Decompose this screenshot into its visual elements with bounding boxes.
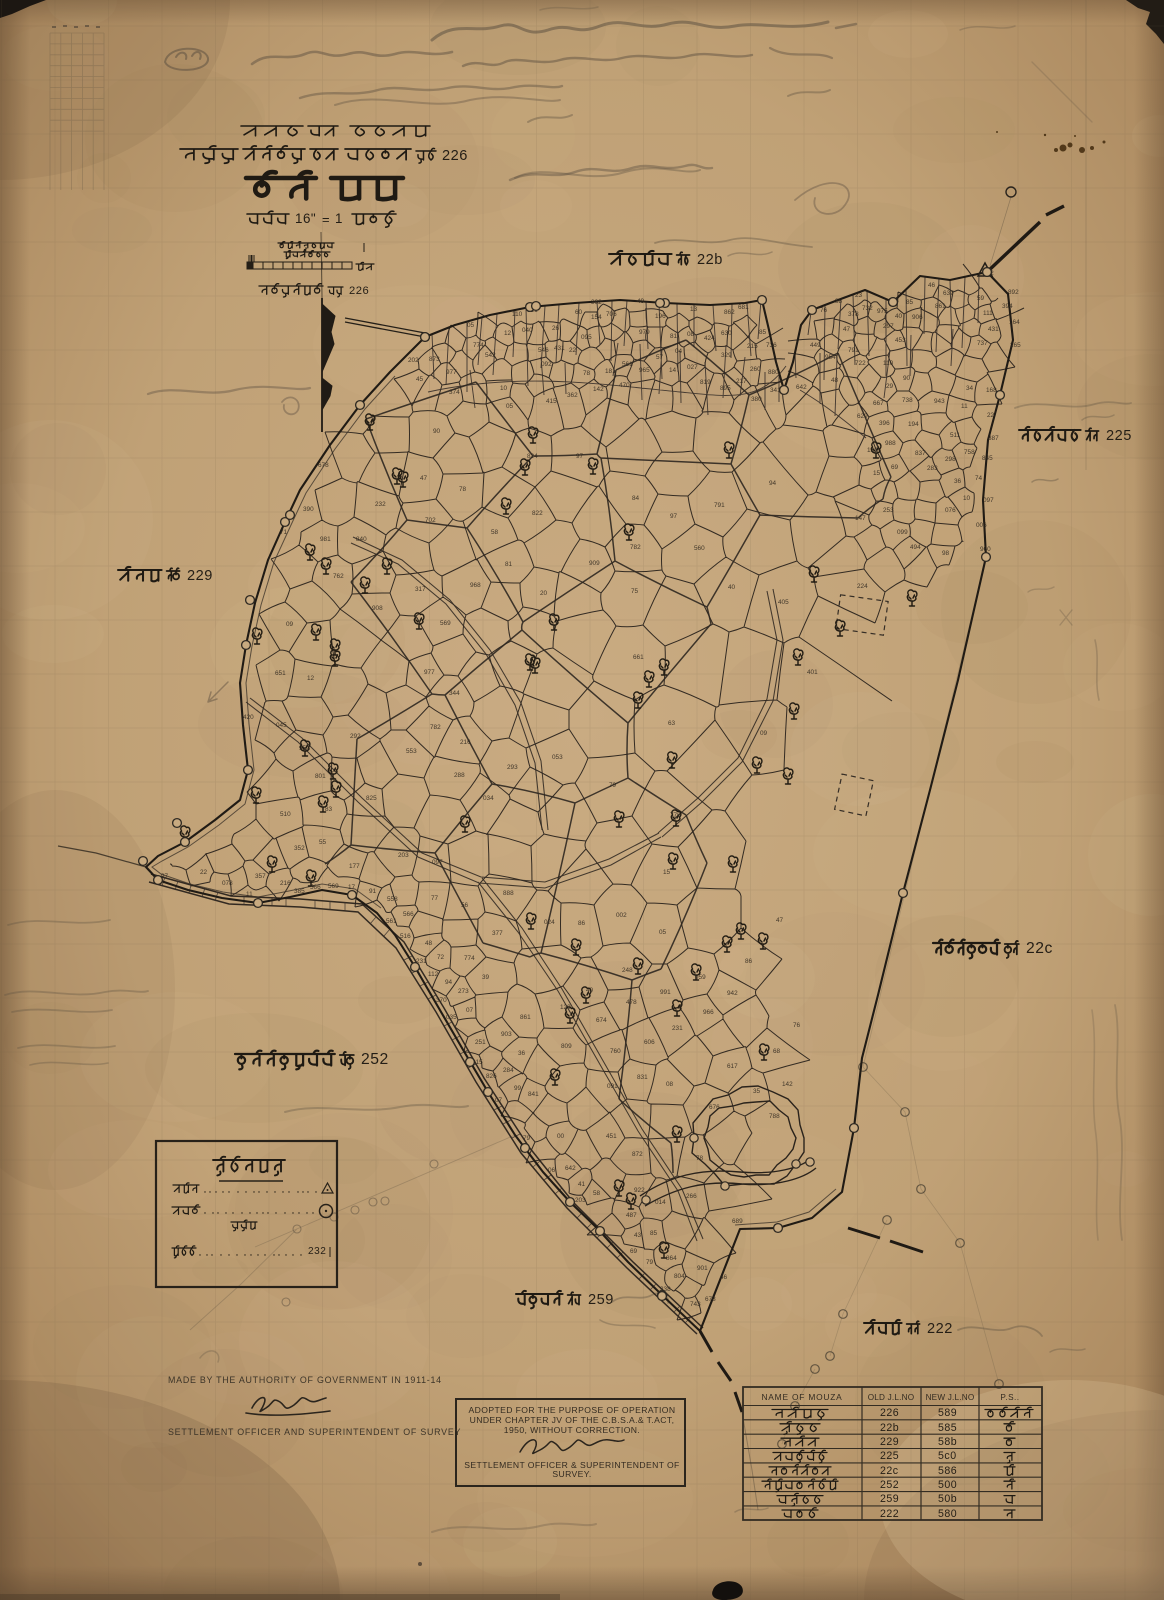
svg-text:252: 252 <box>880 1479 899 1491</box>
svg-text:002: 002 <box>616 912 627 919</box>
svg-text:97: 97 <box>670 513 678 520</box>
svg-text:41: 41 <box>578 1181 586 1188</box>
svg-text:791: 791 <box>714 502 725 509</box>
svg-text:580: 580 <box>938 1508 957 1520</box>
svg-text:04: 04 <box>675 348 683 355</box>
svg-text:79: 79 <box>646 1259 654 1266</box>
svg-text:288: 288 <box>454 772 465 779</box>
svg-text:888: 888 <box>503 890 514 897</box>
svg-text:822: 822 <box>532 510 543 517</box>
svg-text:702: 702 <box>425 517 436 524</box>
svg-text:424: 424 <box>704 335 715 342</box>
svg-text:385: 385 <box>294 888 305 895</box>
svg-text:377: 377 <box>492 930 503 937</box>
svg-text:48: 48 <box>831 377 839 384</box>
svg-text:05: 05 <box>659 929 667 936</box>
svg-text:420: 420 <box>243 714 254 721</box>
svg-text:880: 880 <box>768 369 779 376</box>
svg-text:585: 585 <box>938 1422 957 1434</box>
svg-text:966: 966 <box>703 1009 714 1016</box>
svg-text:81: 81 <box>670 333 678 340</box>
svg-text:05: 05 <box>467 322 475 329</box>
svg-text:979: 979 <box>639 329 650 336</box>
svg-text:11: 11 <box>246 891 253 898</box>
svg-text:43: 43 <box>634 1232 642 1239</box>
svg-text:NEW J.L.NO: NEW J.L.NO <box>926 1393 975 1402</box>
svg-text:SURVEY.: SURVEY. <box>552 1469 591 1479</box>
svg-text:252: 252 <box>361 1051 389 1068</box>
svg-text:629: 629 <box>857 413 868 420</box>
svg-text:344: 344 <box>449 690 460 697</box>
svg-text:154: 154 <box>591 314 602 321</box>
svg-text:77: 77 <box>431 895 439 902</box>
svg-text:097: 097 <box>983 497 994 504</box>
svg-text:569: 569 <box>328 883 339 890</box>
svg-text:71: 71 <box>280 529 288 536</box>
svg-text:90: 90 <box>903 375 911 382</box>
svg-text:86: 86 <box>578 920 586 927</box>
svg-text:630: 630 <box>721 330 732 337</box>
svg-text:MADE BY THE AUTHORITY OF GOVER: MADE BY THE AUTHORITY OF GOVERNMENT IN 1… <box>168 1375 442 1385</box>
svg-text:79: 79 <box>523 1135 531 1142</box>
svg-text:203: 203 <box>575 1197 586 1204</box>
svg-text:453: 453 <box>895 337 906 344</box>
svg-text:40: 40 <box>586 987 594 994</box>
svg-text:22b: 22b <box>697 252 723 268</box>
svg-text:NAME OF MOUZA: NAME OF MOUZA <box>761 1392 842 1402</box>
svg-text:960: 960 <box>980 546 991 553</box>
svg-text:566: 566 <box>403 911 414 918</box>
svg-text:22b: 22b <box>880 1422 899 1434</box>
svg-text:431: 431 <box>988 326 999 333</box>
svg-text:606: 606 <box>644 1039 655 1046</box>
svg-text:667: 667 <box>873 400 884 407</box>
svg-text:975: 975 <box>877 308 888 315</box>
svg-text:94: 94 <box>769 480 777 487</box>
svg-text:129: 129 <box>560 1004 571 1011</box>
svg-text:864: 864 <box>666 1255 677 1262</box>
svg-text:23: 23 <box>855 292 863 299</box>
svg-text:954: 954 <box>825 354 836 361</box>
svg-text:111: 111 <box>983 310 993 317</box>
svg-text:415: 415 <box>546 398 557 405</box>
svg-text:329: 329 <box>721 352 732 359</box>
svg-text:774: 774 <box>473 342 484 349</box>
svg-text:260: 260 <box>750 366 761 373</box>
svg-text:72: 72 <box>437 954 445 961</box>
svg-text:20: 20 <box>540 590 548 597</box>
svg-text:58: 58 <box>491 529 499 536</box>
svg-text:095: 095 <box>581 334 592 341</box>
svg-text:053: 053 <box>552 754 563 761</box>
svg-text:85: 85 <box>759 329 767 336</box>
svg-text:873: 873 <box>429 356 440 363</box>
svg-text:74: 74 <box>975 475 983 482</box>
svg-text:478: 478 <box>626 999 637 1006</box>
svg-text:352: 352 <box>294 845 305 852</box>
svg-text:861: 861 <box>935 303 946 310</box>
svg-text:00: 00 <box>557 1133 565 1140</box>
svg-text:861: 861 <box>520 1014 531 1021</box>
svg-text:69: 69 <box>891 464 899 471</box>
svg-text:194: 194 <box>908 421 919 428</box>
svg-text:825: 825 <box>366 795 377 802</box>
svg-text:988: 988 <box>885 440 896 447</box>
svg-text:22: 22 <box>200 869 208 876</box>
svg-text:292: 292 <box>350 733 361 740</box>
svg-text:809: 809 <box>561 1043 572 1050</box>
svg-text:1: 1 <box>335 211 343 226</box>
svg-text:SETTLEMENT OFFICER AND SUPERIN: SETTLEMENT OFFICER AND SUPERINTENDENT OF… <box>168 1427 461 1437</box>
svg-text:45: 45 <box>416 376 424 383</box>
svg-text:202: 202 <box>408 357 419 364</box>
svg-text:35: 35 <box>753 1088 761 1095</box>
svg-text:782: 782 <box>630 544 641 551</box>
svg-text:511: 511 <box>950 432 961 439</box>
svg-text:405: 405 <box>778 599 789 606</box>
svg-text:317: 317 <box>415 586 426 593</box>
svg-text:88: 88 <box>835 298 843 305</box>
svg-text:224: 224 <box>857 583 868 590</box>
svg-text:942: 942 <box>727 990 738 997</box>
svg-text:561: 561 <box>622 361 633 368</box>
svg-text:569: 569 <box>440 620 451 627</box>
svg-text:232: 232 <box>308 1246 326 1257</box>
svg-text:922: 922 <box>634 1187 645 1194</box>
svg-text:722: 722 <box>855 360 866 367</box>
svg-text:259: 259 <box>588 1292 614 1308</box>
svg-text:674: 674 <box>596 1017 607 1024</box>
svg-text:908: 908 <box>372 605 383 612</box>
svg-text:449: 449 <box>810 342 821 349</box>
svg-text:56: 56 <box>461 902 469 909</box>
svg-text:901: 901 <box>697 1265 708 1272</box>
svg-text:181: 181 <box>605 368 616 375</box>
svg-text:952: 952 <box>299 745 310 752</box>
svg-text:676: 676 <box>709 1104 720 1111</box>
svg-text:284: 284 <box>503 1067 514 1074</box>
svg-text:959: 959 <box>695 974 706 981</box>
svg-text:516: 516 <box>400 933 411 940</box>
svg-text:431: 431 <box>554 345 565 352</box>
svg-text:22: 22 <box>987 412 995 419</box>
svg-text:39: 39 <box>482 974 490 981</box>
svg-text:370: 370 <box>436 997 447 1004</box>
svg-text:470: 470 <box>619 382 630 389</box>
svg-text:845: 845 <box>982 455 993 462</box>
svg-text:46: 46 <box>720 1274 728 1281</box>
svg-text:47: 47 <box>776 917 784 924</box>
svg-text:380: 380 <box>751 396 762 403</box>
svg-text:OLD J.L.NO: OLD J.L.NO <box>868 1393 915 1402</box>
svg-text:045: 045 <box>276 722 287 729</box>
svg-text:027: 027 <box>687 364 698 371</box>
svg-text:13: 13 <box>690 306 698 313</box>
svg-text:08: 08 <box>666 1081 674 1088</box>
svg-text:357: 357 <box>255 873 266 880</box>
svg-text:12: 12 <box>307 675 315 682</box>
svg-text:91: 91 <box>369 888 377 895</box>
svg-text:229: 229 <box>880 1436 899 1448</box>
svg-text:133: 133 <box>867 447 878 454</box>
svg-text:231: 231 <box>672 1025 683 1032</box>
svg-text:15: 15 <box>873 470 881 477</box>
svg-text:553: 553 <box>406 748 417 755</box>
svg-text:57: 57 <box>656 354 664 361</box>
svg-text:560: 560 <box>694 545 705 552</box>
svg-text:85: 85 <box>650 1230 658 1237</box>
svg-text:804: 804 <box>674 1273 685 1280</box>
svg-text:737: 737 <box>977 340 988 347</box>
svg-text:110: 110 <box>883 360 894 367</box>
svg-text:90: 90 <box>433 428 441 435</box>
svg-text:112: 112 <box>428 971 439 978</box>
svg-text:736: 736 <box>766 342 777 349</box>
svg-text:097: 097 <box>432 859 443 866</box>
svg-text:58b: 58b <box>938 1436 957 1448</box>
svg-text:P.S..: P.S.. <box>1000 1393 1019 1402</box>
svg-text:401: 401 <box>807 669 818 676</box>
svg-text:147: 147 <box>855 515 866 522</box>
svg-text:034: 034 <box>483 795 494 802</box>
svg-text:099: 099 <box>897 529 908 536</box>
svg-text:12: 12 <box>504 330 512 337</box>
svg-text:076: 076 <box>945 507 956 514</box>
svg-text:15: 15 <box>663 869 671 876</box>
svg-text:84: 84 <box>632 495 640 502</box>
svg-text:142: 142 <box>593 386 604 393</box>
svg-text:689: 689 <box>732 1218 743 1225</box>
svg-text:991: 991 <box>660 989 671 996</box>
svg-text:49: 49 <box>637 298 645 305</box>
svg-text:36: 36 <box>518 1050 526 1057</box>
svg-text:035: 035 <box>446 1014 457 1021</box>
svg-text:824: 824 <box>527 453 538 460</box>
svg-text:29: 29 <box>886 383 894 390</box>
svg-text:909: 909 <box>589 560 600 567</box>
svg-text:819: 819 <box>700 379 711 386</box>
svg-text:55: 55 <box>319 839 327 846</box>
svg-text:226: 226 <box>349 285 369 297</box>
svg-text:895: 895 <box>720 385 731 392</box>
svg-text:293: 293 <box>507 764 518 771</box>
svg-text:40: 40 <box>728 584 736 591</box>
svg-text:965: 965 <box>639 367 650 374</box>
svg-text:831: 831 <box>637 1074 648 1081</box>
svg-text:078: 078 <box>222 880 233 887</box>
svg-text:85: 85 <box>906 299 914 306</box>
svg-text:76: 76 <box>793 1022 801 1029</box>
svg-text:34: 34 <box>966 385 974 392</box>
svg-text:11: 11 <box>961 403 968 410</box>
svg-text:48: 48 <box>425 940 433 947</box>
svg-text:=: = <box>322 212 330 227</box>
svg-text:906: 906 <box>912 314 923 321</box>
svg-text:651: 651 <box>275 670 286 677</box>
svg-text:283: 283 <box>927 465 938 472</box>
svg-text:216: 216 <box>280 880 291 887</box>
svg-text:47: 47 <box>843 326 851 333</box>
svg-text:98: 98 <box>942 550 950 557</box>
svg-text:63: 63 <box>668 720 676 727</box>
svg-text:758: 758 <box>964 449 975 456</box>
svg-text:110: 110 <box>512 311 523 318</box>
svg-text:215: 215 <box>747 343 758 350</box>
svg-text:60: 60 <box>575 309 583 316</box>
svg-text:788: 788 <box>769 1113 780 1120</box>
svg-text:78: 78 <box>583 370 591 377</box>
svg-text:273: 273 <box>458 988 469 995</box>
svg-text:222: 222 <box>880 1508 899 1520</box>
svg-text:06: 06 <box>548 1167 556 1174</box>
svg-text:222: 222 <box>927 1321 953 1337</box>
svg-text:58: 58 <box>593 1190 601 1197</box>
svg-text:943: 943 <box>934 398 945 405</box>
svg-text:46: 46 <box>928 282 936 289</box>
svg-text:510: 510 <box>280 811 291 818</box>
svg-text:487: 487 <box>626 1212 637 1219</box>
svg-text:678: 678 <box>318 462 329 469</box>
svg-text:69: 69 <box>630 1248 638 1255</box>
svg-text:589: 589 <box>938 1407 957 1419</box>
svg-text:981: 981 <box>320 536 331 543</box>
svg-text:94: 94 <box>445 979 453 986</box>
svg-text:22c: 22c <box>1026 940 1053 957</box>
svg-text:362: 362 <box>591 299 602 306</box>
svg-text:678: 678 <box>705 1296 716 1303</box>
svg-text:862: 862 <box>724 309 735 316</box>
svg-text:248: 248 <box>622 967 633 974</box>
svg-text:378: 378 <box>848 311 859 318</box>
svg-text:36: 36 <box>954 478 962 485</box>
svg-text:1950, WITHOUT CORRECTION.: 1950, WITHOUT CORRECTION. <box>504 1425 640 1435</box>
svg-text:253: 253 <box>883 507 894 514</box>
svg-text:164: 164 <box>1009 319 1020 326</box>
svg-text:779: 779 <box>670 812 681 819</box>
svg-text:791: 791 <box>848 347 859 354</box>
svg-text:78: 78 <box>459 486 467 493</box>
svg-text:142: 142 <box>782 1081 793 1088</box>
svg-text:50b: 50b <box>938 1493 957 1505</box>
svg-text:840: 840 <box>356 536 367 543</box>
svg-text:362: 362 <box>567 392 578 399</box>
svg-text:374: 374 <box>449 389 460 396</box>
svg-text:297: 297 <box>883 323 894 330</box>
svg-text:177: 177 <box>349 863 360 870</box>
svg-text:259: 259 <box>880 1493 899 1505</box>
svg-text:07: 07 <box>466 1007 474 1014</box>
svg-text:225: 225 <box>880 1450 899 1462</box>
svg-text:394: 394 <box>1002 303 1013 310</box>
svg-text:637: 637 <box>943 290 954 297</box>
svg-text:22: 22 <box>569 347 577 354</box>
svg-text:ADOPTED FOR THE PURPOSE OF OPE: ADOPTED FOR THE PURPOSE OF OPERATION <box>469 1405 676 1415</box>
svg-text:81: 81 <box>505 561 513 568</box>
svg-text:216: 216 <box>460 739 471 746</box>
svg-text:05: 05 <box>506 403 514 410</box>
svg-text:500: 500 <box>938 1479 957 1491</box>
svg-text:801: 801 <box>315 773 326 780</box>
svg-text:092: 092 <box>541 361 552 368</box>
svg-text:266: 266 <box>686 1193 697 1200</box>
svg-text:97: 97 <box>576 453 584 460</box>
svg-text:59: 59 <box>977 295 985 302</box>
svg-text:86: 86 <box>745 958 753 965</box>
svg-text:642: 642 <box>565 1165 576 1172</box>
svg-text:091: 091 <box>607 1083 618 1090</box>
svg-text:10: 10 <box>963 495 971 502</box>
svg-text:542: 542 <box>485 352 496 359</box>
svg-text:586: 586 <box>938 1465 957 1477</box>
svg-text:892: 892 <box>1008 289 1019 296</box>
svg-text:826: 826 <box>486 1073 497 1080</box>
svg-text:968: 968 <box>470 582 481 589</box>
svg-text:26: 26 <box>552 325 560 332</box>
svg-text:229: 229 <box>187 568 213 584</box>
svg-text:232: 232 <box>375 501 386 508</box>
svg-text:40: 40 <box>895 313 903 320</box>
svg-text:79: 79 <box>609 782 617 789</box>
svg-text:UNDER CHAPTER JV OF THE C.B.S.: UNDER CHAPTER JV OF THE C.B.S.A.& T.ACT, <box>470 1415 675 1425</box>
svg-text:681: 681 <box>738 304 749 311</box>
svg-text:558: 558 <box>387 896 398 903</box>
svg-text:08: 08 <box>687 331 695 338</box>
svg-text:887: 887 <box>988 435 999 442</box>
svg-text:10: 10 <box>500 385 508 392</box>
svg-text:014: 014 <box>655 1199 666 1206</box>
svg-text:68: 68 <box>773 1048 781 1055</box>
svg-text:841: 841 <box>528 1091 539 1098</box>
svg-text:006: 006 <box>976 522 987 529</box>
svg-text:09: 09 <box>286 621 294 628</box>
svg-text:217: 217 <box>736 378 747 385</box>
svg-text:78: 78 <box>696 1155 704 1162</box>
svg-text:5c0: 5c0 <box>938 1450 957 1462</box>
svg-text:225: 225 <box>1106 428 1132 444</box>
svg-text:566: 566 <box>310 884 321 891</box>
svg-text:782: 782 <box>430 724 441 731</box>
svg-text:396: 396 <box>879 420 890 427</box>
svg-text:732: 732 <box>862 305 873 312</box>
svg-text:837: 837 <box>915 450 926 457</box>
svg-text:546: 546 <box>538 347 549 354</box>
svg-text:203: 203 <box>398 852 409 859</box>
svg-text:977: 977 <box>446 369 457 376</box>
svg-text:774: 774 <box>464 955 475 962</box>
svg-text:196: 196 <box>655 313 666 320</box>
svg-text:17: 17 <box>348 884 356 891</box>
svg-text:226: 226 <box>442 148 468 164</box>
svg-text:661: 661 <box>633 654 644 661</box>
svg-text:75: 75 <box>631 588 639 595</box>
svg-text:872: 872 <box>632 1151 643 1158</box>
svg-text:617: 617 <box>727 1063 738 1070</box>
svg-text:561: 561 <box>386 918 397 925</box>
svg-text:16": 16" <box>295 211 316 226</box>
svg-text:706: 706 <box>606 311 617 318</box>
svg-text:226: 226 <box>880 1407 899 1419</box>
svg-text:390: 390 <box>303 506 314 513</box>
svg-text:09: 09 <box>760 730 768 737</box>
svg-text:642: 642 <box>796 384 807 391</box>
svg-text:22c: 22c <box>880 1465 899 1477</box>
svg-text:298: 298 <box>945 456 956 463</box>
svg-text:07: 07 <box>495 1097 503 1104</box>
svg-text:265: 265 <box>1010 342 1021 349</box>
svg-text:762: 762 <box>333 573 344 580</box>
svg-text:977: 977 <box>424 669 435 676</box>
svg-text:760: 760 <box>610 1048 621 1055</box>
